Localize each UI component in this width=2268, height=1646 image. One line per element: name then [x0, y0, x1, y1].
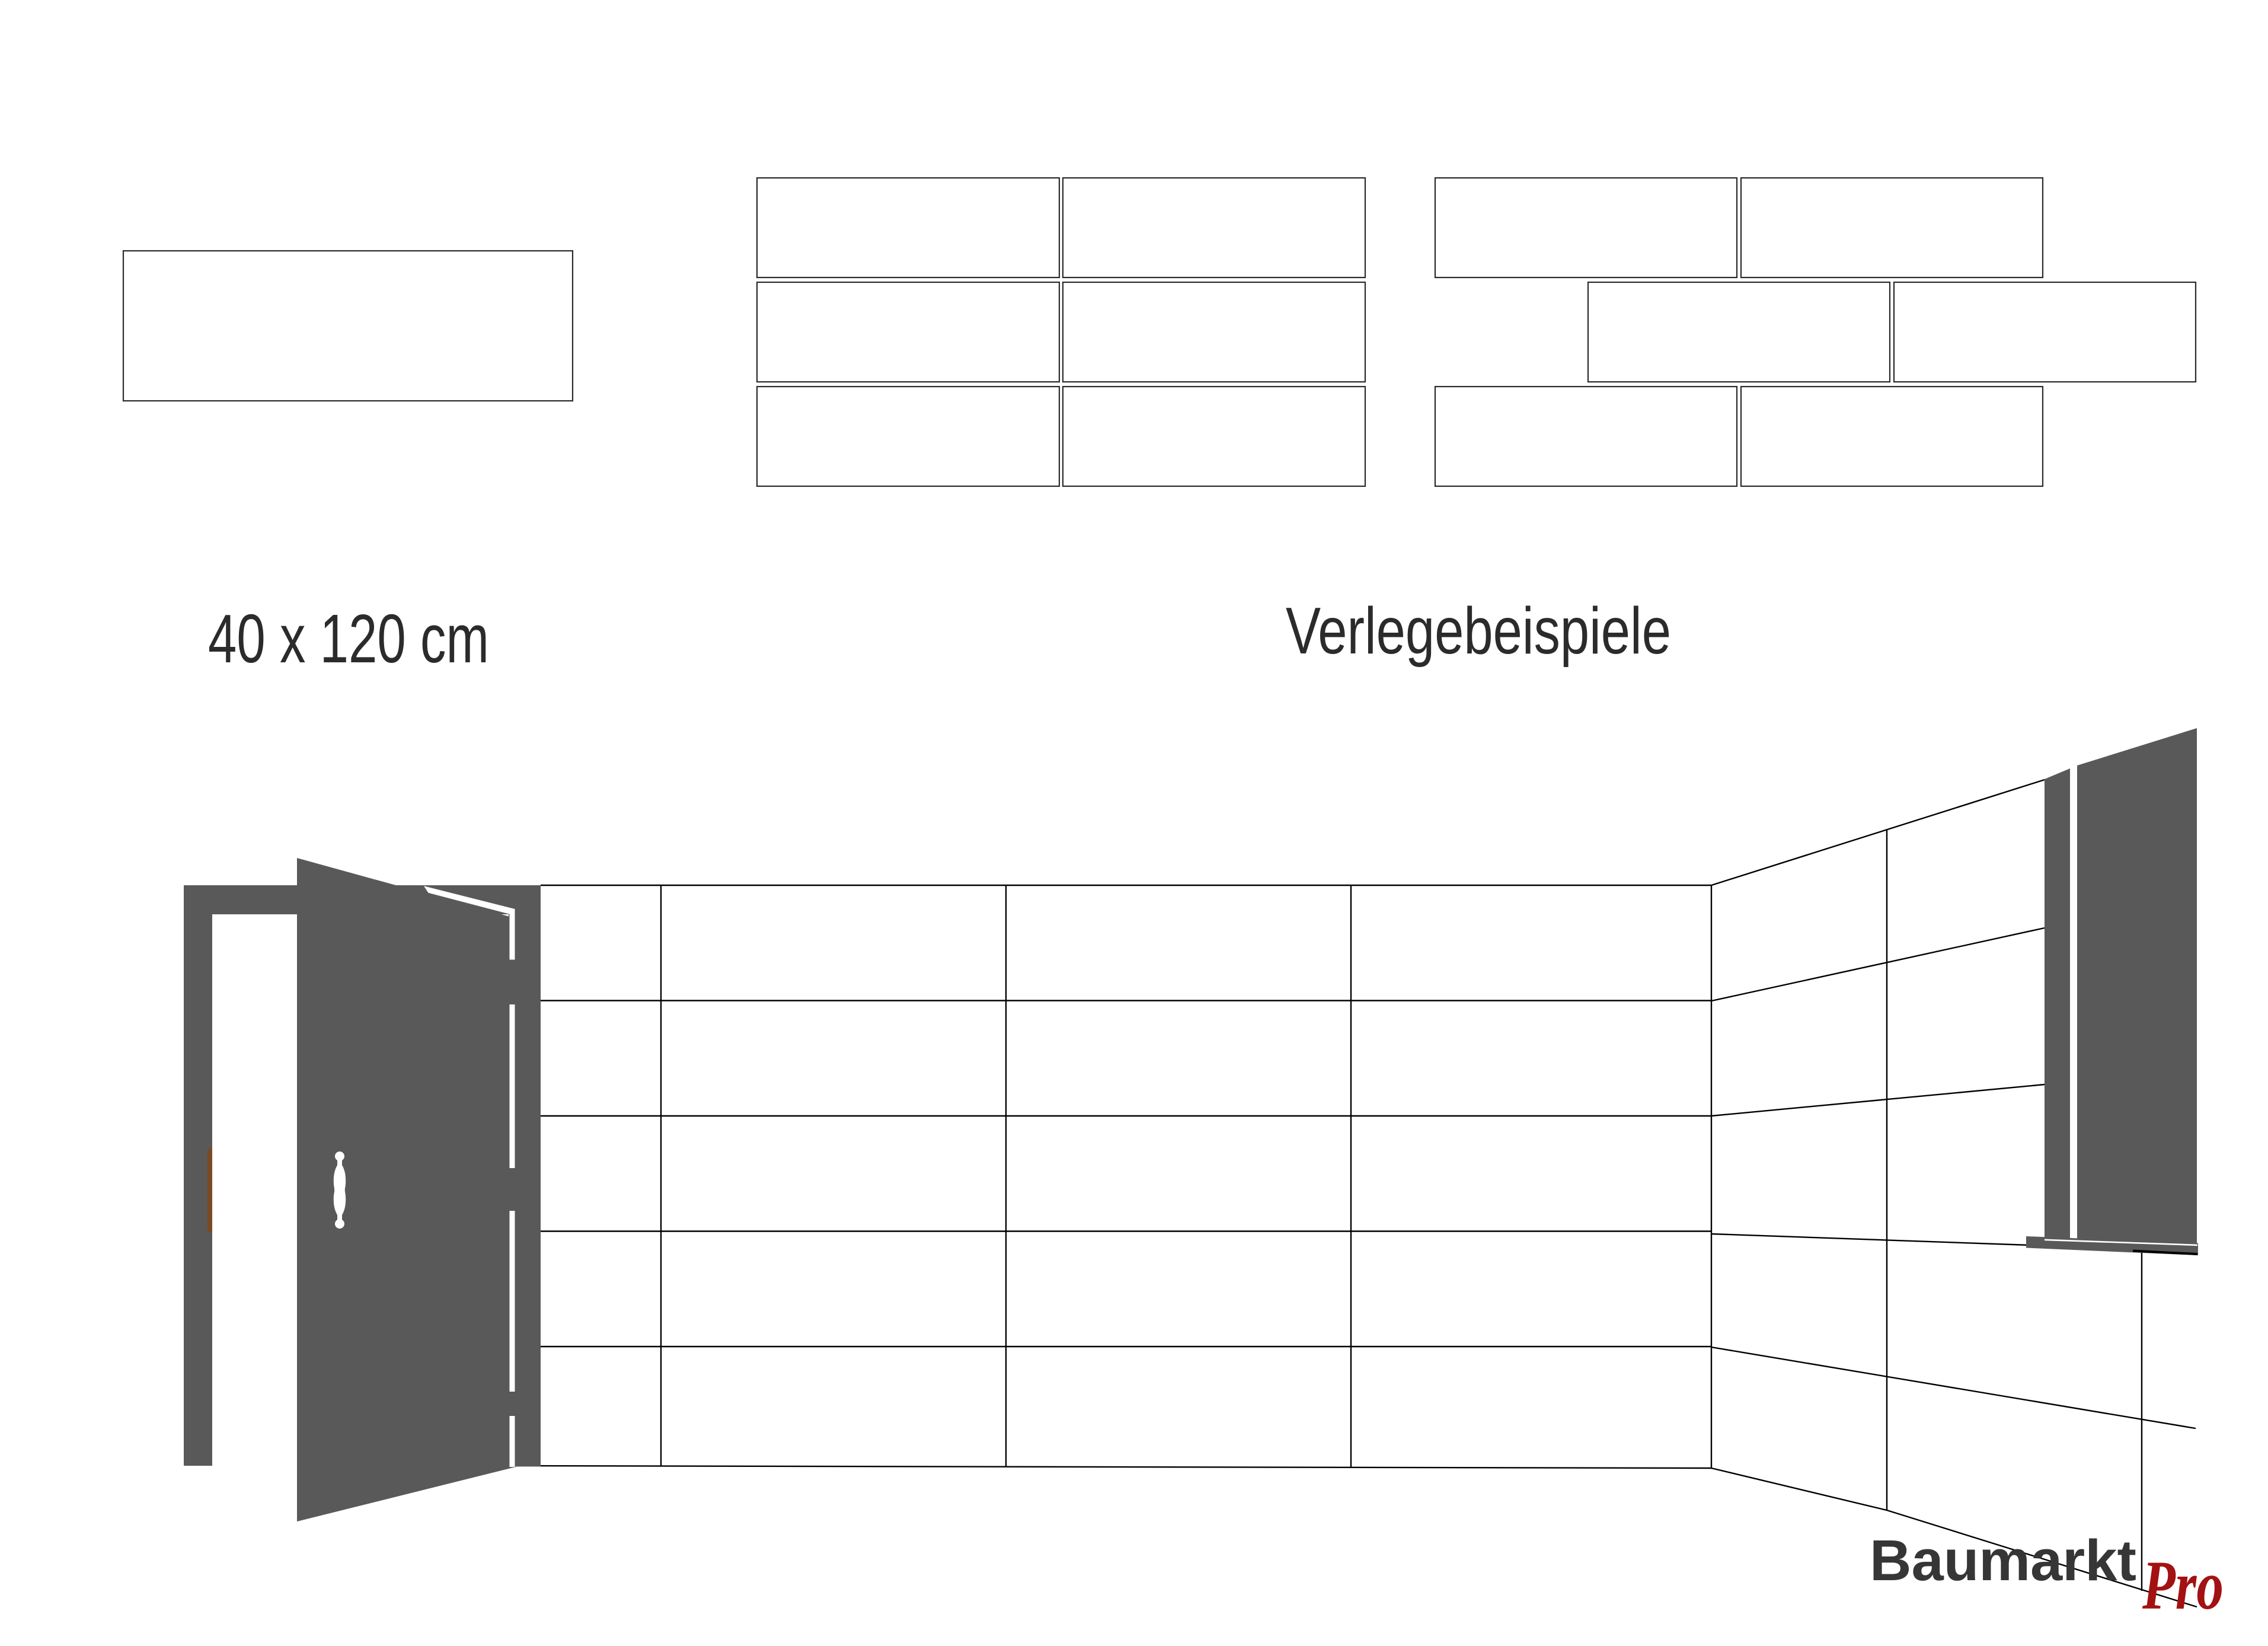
svg-text:Baumarkt: Baumarkt	[1870, 1528, 2136, 1593]
svg-text:Pro: Pro	[2142, 1546, 2224, 1624]
svg-text:40 x 120 cm: 40 x 120 cm	[208, 600, 489, 677]
svg-text:Verlegebeispiele: Verlegebeispiele	[1286, 594, 1671, 668]
